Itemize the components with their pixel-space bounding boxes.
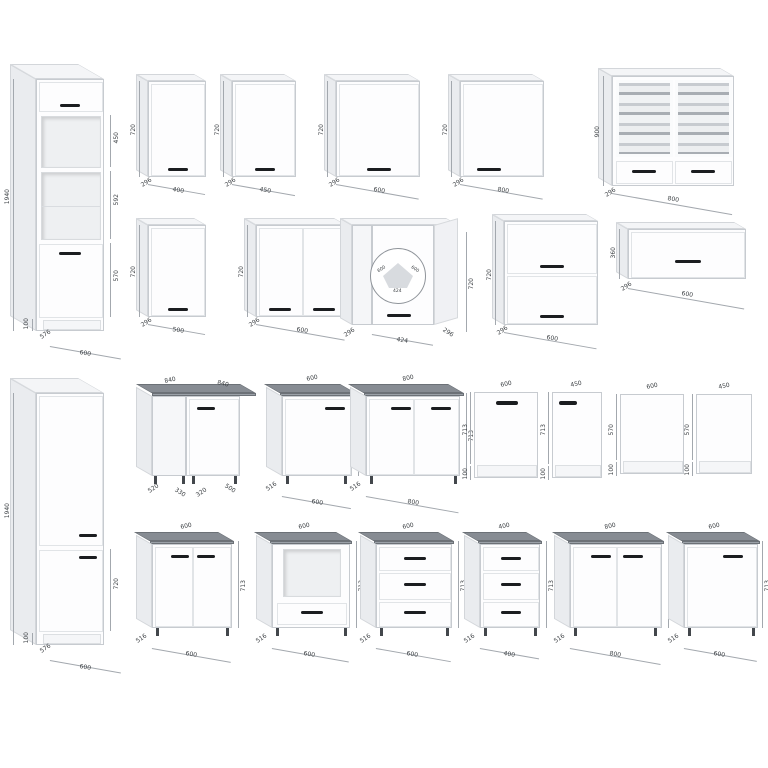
- dim-section: 570: [114, 270, 120, 281]
- door: [303, 228, 345, 316]
- dim-line: [619, 229, 620, 279]
- leg: [370, 476, 373, 484]
- glass-door: [675, 80, 732, 157]
- wall-cabinet-500: 720 296 500: [136, 218, 226, 343]
- countertop: [254, 532, 352, 541]
- dim-depth: 296: [496, 325, 509, 336]
- dim-width: 424: [396, 337, 408, 345]
- side-face: [136, 535, 152, 628]
- dim-height: 570: [609, 424, 615, 435]
- dim-width-top: 600: [180, 523, 192, 531]
- door-handle: [540, 265, 564, 268]
- base-cabinet-800: 800 713 516 800: [350, 384, 480, 524]
- dim-width: 600: [303, 651, 315, 659]
- front-left-face: [152, 396, 186, 476]
- dim-line: [451, 81, 452, 177]
- dim-depth: 296: [328, 177, 341, 188]
- dim-depth: 296: [620, 281, 633, 292]
- side-face: [448, 74, 460, 177]
- countertop: [666, 532, 760, 541]
- dim-depth: 296: [452, 177, 465, 188]
- dim-bottom: 330: [173, 487, 186, 498]
- panel-handle: [559, 401, 577, 405]
- drawer-handle: [632, 170, 656, 173]
- dim-width-top: 800: [402, 375, 414, 383]
- door-handle: [431, 407, 451, 410]
- front-face: [232, 81, 296, 177]
- dim-height: 713: [241, 580, 247, 591]
- dim-depth: 296: [441, 327, 454, 338]
- dim-depth: 296: [140, 177, 153, 188]
- leg: [192, 476, 195, 484]
- front-face: [480, 544, 540, 628]
- side-face: [244, 218, 256, 317]
- side-face: [554, 535, 570, 628]
- leg: [344, 476, 347, 484]
- side-face: [136, 74, 148, 177]
- drawer-base-600: 600 713 516 600: [360, 532, 472, 682]
- plinth: [699, 461, 751, 473]
- plinth: [477, 465, 537, 477]
- top-face: [598, 68, 734, 76]
- dim-line: [548, 392, 549, 464]
- dim-line: [247, 225, 248, 317]
- dim-height: 720: [319, 124, 325, 135]
- corner-wall-cabinet: 600 600 424 720 296 424 296: [340, 218, 490, 346]
- dim-line: [762, 541, 763, 628]
- dim-line: [110, 243, 111, 317]
- panel-front: [474, 392, 538, 478]
- dim-line: [692, 394, 693, 460]
- wall-cabinet-600: 720 296 600: [324, 74, 439, 199]
- dim-width: 600: [406, 651, 418, 659]
- dim-width: 450: [570, 381, 582, 389]
- front-face: [256, 225, 346, 317]
- dim-section: 720: [114, 578, 120, 589]
- wall-cabinet-400: 720 296 400: [136, 74, 226, 199]
- door-handle: [79, 556, 97, 559]
- front-face: [336, 81, 420, 177]
- front-face: [376, 544, 452, 628]
- base-cabinet-600-single: 600 713 516 600: [668, 532, 768, 682]
- leg: [752, 628, 755, 636]
- leg: [454, 476, 457, 484]
- plinth: [43, 634, 101, 644]
- dim-plinth: 100: [24, 632, 30, 643]
- dim-line: [458, 541, 459, 628]
- dim-depth: 516: [667, 633, 680, 644]
- leg: [446, 628, 449, 636]
- dim-width: 600: [79, 664, 91, 672]
- dim-line: [603, 76, 604, 186]
- countertop: [134, 532, 234, 541]
- dim-line: [110, 171, 111, 239]
- door: [573, 547, 617, 627]
- door-handle: [477, 168, 501, 171]
- plinth: [555, 465, 601, 477]
- dim-width-top: 600: [298, 523, 310, 531]
- dim-line: [466, 232, 467, 332]
- panel-front: [552, 392, 602, 478]
- door: [151, 84, 205, 176]
- dim-width: 600: [311, 499, 323, 507]
- dim-line: [32, 319, 33, 331]
- leg: [156, 628, 159, 636]
- front-face: [684, 544, 758, 628]
- door-handle: [197, 555, 215, 558]
- catalog-sheet: 1940 450 592 570 100 576 600 720 296 400…: [0, 0, 768, 768]
- dim-width: 400: [172, 187, 184, 195]
- dim-width: 400: [503, 651, 515, 659]
- door-handle: [168, 168, 188, 171]
- dim-width-top: 800: [604, 523, 616, 531]
- dim-depth: 296: [140, 317, 153, 328]
- dim-width: 600: [713, 651, 725, 659]
- front-face: [282, 396, 352, 476]
- door-handle: [313, 308, 335, 311]
- dim-depth: 516: [349, 481, 362, 492]
- side-face: [360, 535, 376, 628]
- drawer: [483, 573, 539, 600]
- door-handle: [387, 314, 411, 317]
- door: [39, 82, 103, 112]
- door-handle: [391, 407, 411, 410]
- dim-depth: 516: [265, 481, 278, 492]
- dim-depth: 516: [359, 633, 372, 644]
- top-face: [616, 222, 746, 229]
- leg: [654, 628, 657, 636]
- dim-width: 800: [407, 499, 419, 507]
- dim-bottom: 320: [195, 487, 208, 498]
- dim-line: [548, 466, 549, 480]
- dim-line: [327, 81, 328, 177]
- dim-line: [546, 541, 547, 628]
- tall-fridge-cabinet: 1940 720 100 576 600: [10, 378, 150, 678]
- front-face: [148, 81, 206, 177]
- dim-depth: 576: [39, 643, 52, 654]
- front-face: [612, 76, 734, 186]
- dim-depth: 576: [39, 329, 52, 340]
- door-handle: [675, 260, 701, 263]
- wall-cabinet-flip-single: 360 296 600: [616, 222, 766, 322]
- leg: [344, 628, 347, 636]
- dim-depth: 296: [248, 317, 261, 328]
- dim-height: 1940: [5, 503, 11, 518]
- dim-width: 600: [500, 381, 512, 389]
- front-face: [460, 81, 544, 177]
- tall-oven-cabinet: 1940 450 592 570 100 576 600: [10, 64, 150, 364]
- front-face: [504, 221, 598, 325]
- side-face: [492, 214, 504, 325]
- front-face: [36, 393, 104, 645]
- side-face: [256, 535, 272, 628]
- dim-depth: 516: [553, 633, 566, 644]
- end-panel-600: 600 570 100: [614, 388, 694, 503]
- door: [193, 547, 231, 627]
- dim-section: 450: [114, 132, 120, 143]
- dim-width: 600: [373, 187, 385, 195]
- base-cabinet-800-double: 800 713 516 800: [554, 532, 684, 682]
- dim-line: [238, 541, 239, 628]
- side-face: [616, 222, 628, 279]
- leg: [534, 628, 537, 636]
- door: [151, 228, 205, 316]
- dim-depth: 516: [463, 633, 476, 644]
- door-handle: [723, 555, 743, 558]
- side-face: [340, 218, 352, 325]
- dim-width: 600: [185, 651, 197, 659]
- panel-front: [620, 394, 684, 474]
- leg: [182, 476, 185, 484]
- dim-width-top: 400: [498, 523, 510, 531]
- dim-depth: 296: [224, 177, 237, 188]
- side-face: [136, 387, 152, 476]
- countertop: [358, 532, 454, 541]
- door-handle: [591, 555, 611, 558]
- door-handle: [255, 168, 275, 171]
- glass-door: [616, 80, 673, 157]
- door-handle: [168, 308, 188, 311]
- front-right-face: [186, 396, 240, 476]
- side-face: [668, 535, 684, 628]
- wall-cabinet-flip-double: 720 296 600: [492, 214, 612, 349]
- door: [39, 244, 103, 318]
- drawer-base-400: 400 713 516 400: [464, 532, 560, 682]
- drawer-handle: [691, 170, 715, 173]
- drawer-handle: [301, 611, 323, 614]
- plinth: [623, 461, 683, 473]
- dim-width: 450: [718, 383, 730, 391]
- dim-width-top: 600: [708, 523, 720, 531]
- side-face: [464, 535, 480, 628]
- dim-plinth: 100: [24, 318, 30, 329]
- door-handle: [269, 308, 291, 311]
- dim-height: 720: [239, 266, 245, 277]
- countertop: [348, 384, 464, 393]
- top-face: [448, 74, 544, 81]
- dim-line: [110, 549, 111, 631]
- drawer-handle: [404, 611, 426, 614]
- door-handle: [197, 407, 215, 410]
- front-face: [152, 544, 232, 628]
- drawer-handle: [404, 557, 426, 560]
- drawer: [277, 603, 347, 625]
- end-panel-450: 450 570 100: [690, 388, 760, 503]
- dim-width: 600: [79, 350, 91, 358]
- dim-line: [139, 225, 140, 317]
- drawer-handle: [404, 583, 426, 586]
- dim-height: 720: [215, 124, 221, 135]
- top-face: [324, 74, 420, 81]
- drawer-handle: [501, 611, 521, 614]
- leg: [380, 628, 383, 636]
- dim-line: [470, 392, 471, 464]
- panel-front: [696, 394, 752, 474]
- door-handle: [60, 104, 80, 107]
- dim-depth: 516: [135, 633, 148, 644]
- countertop: [552, 532, 664, 541]
- door: [463, 84, 543, 176]
- door-handle: [623, 555, 643, 558]
- dim-width: 600: [646, 383, 658, 391]
- door: [235, 84, 295, 176]
- side-face: [350, 387, 366, 476]
- leg: [484, 628, 487, 636]
- countertop: [264, 384, 356, 393]
- door-handle: [325, 407, 345, 410]
- glass-wall-cabinet: 900 296 800: [598, 68, 748, 203]
- flip-door: [631, 232, 745, 278]
- dim-height: 713: [541, 424, 547, 435]
- dim-height: 360: [611, 247, 617, 258]
- drawer: [483, 602, 539, 627]
- door: [39, 550, 103, 632]
- front-face: [570, 544, 662, 628]
- dim-width-top: 600: [402, 523, 414, 531]
- door: [687, 547, 757, 627]
- side-face: [220, 74, 232, 177]
- door: [259, 228, 303, 316]
- top-face: [244, 218, 346, 225]
- shelf-line: [41, 206, 101, 207]
- dim-line: [616, 394, 617, 460]
- dim-height: 720: [131, 124, 137, 135]
- door: [39, 396, 103, 546]
- door: [339, 84, 419, 176]
- dim-height: 570: [685, 424, 691, 435]
- dim-line: [139, 81, 140, 177]
- drawer-handle: [501, 557, 521, 560]
- dim-plinth: 100: [609, 464, 615, 475]
- dim-line: [110, 115, 111, 167]
- plinth: [43, 320, 101, 330]
- dim-width: 450: [259, 187, 271, 195]
- front-face: [366, 396, 460, 476]
- side-face: [136, 218, 148, 317]
- dim-plinth: 100: [463, 468, 469, 479]
- dim-width: 800: [609, 651, 621, 659]
- door-handle: [540, 315, 564, 318]
- front-face: [148, 225, 206, 317]
- door: [414, 399, 459, 475]
- dim-line: [223, 81, 224, 177]
- leg: [276, 628, 279, 636]
- door: [155, 547, 193, 627]
- dim-height: 1940: [5, 189, 11, 204]
- dim-width-top: 600: [306, 375, 318, 383]
- leg: [286, 476, 289, 484]
- dishwasher-panel-600: 600 713 100: [468, 386, 548, 506]
- appliance-niche: [41, 116, 101, 168]
- dim-section: 592: [114, 194, 120, 205]
- door-handle: [367, 168, 391, 171]
- door-handle: [59, 252, 81, 255]
- door: [189, 399, 239, 475]
- plan-dim: 424: [393, 290, 402, 295]
- dim-depth: 516: [255, 633, 268, 644]
- dim-line: [13, 79, 14, 331]
- leg: [234, 476, 237, 484]
- dim-height: 720: [443, 124, 449, 135]
- dim-height: 720: [131, 266, 137, 277]
- dim-height: 900: [595, 126, 601, 137]
- dim-bottom: 500: [223, 483, 236, 494]
- side-face: [324, 74, 336, 177]
- side-face: [266, 387, 282, 476]
- corner-base-cabinet: 840 840 520 330 320 500: [136, 384, 268, 524]
- dim-height: 720: [487, 269, 493, 280]
- top-face: [492, 214, 598, 221]
- dishwasher-panel-450: 450 713 100: [546, 386, 616, 506]
- dim-height: 713: [463, 424, 469, 435]
- dim-plinth: 100: [541, 468, 547, 479]
- door-handle: [171, 555, 189, 558]
- dim-line: [13, 393, 14, 645]
- dim-line: [356, 541, 357, 628]
- dim-width: 600: [296, 327, 308, 335]
- leg: [574, 628, 577, 636]
- wall-cabinet-450: 720 296 450: [220, 74, 315, 199]
- dim-bottom: 520: [147, 483, 160, 494]
- dim-line: [692, 462, 693, 476]
- dim-line: [495, 221, 496, 325]
- door: [369, 399, 414, 475]
- countertop: [136, 384, 256, 393]
- oven-niche: [283, 549, 341, 597]
- dim-width: 800: [497, 187, 509, 195]
- dim-width: 500: [172, 327, 184, 335]
- drawer: [379, 573, 451, 600]
- dim-depth: 296: [343, 327, 356, 338]
- dim-line: [470, 466, 471, 480]
- wall-cabinet-800: 720 296 800: [448, 74, 563, 199]
- door: [617, 547, 661, 627]
- door-handle: [79, 534, 97, 537]
- panel-handle: [496, 401, 518, 405]
- drawer-handle: [501, 583, 521, 586]
- dim-width: 600: [546, 335, 558, 343]
- dim-line: [32, 633, 33, 645]
- leg: [226, 628, 229, 636]
- base-cabinet-600-double: 600 713 516 600: [136, 532, 251, 682]
- front-left-panel: [352, 225, 372, 325]
- door: [285, 399, 351, 475]
- drawer: [379, 602, 451, 627]
- dim-height: 720: [469, 278, 475, 289]
- oven-housing-cabinet: 600 713 516 600: [256, 532, 371, 682]
- dim-plinth: 100: [685, 464, 691, 475]
- front-face: [272, 544, 350, 628]
- front-face: [36, 79, 104, 331]
- right-angled-panel: [434, 218, 458, 325]
- leg: [688, 628, 691, 636]
- dim-line: [616, 462, 617, 476]
- front-face: [628, 229, 746, 279]
